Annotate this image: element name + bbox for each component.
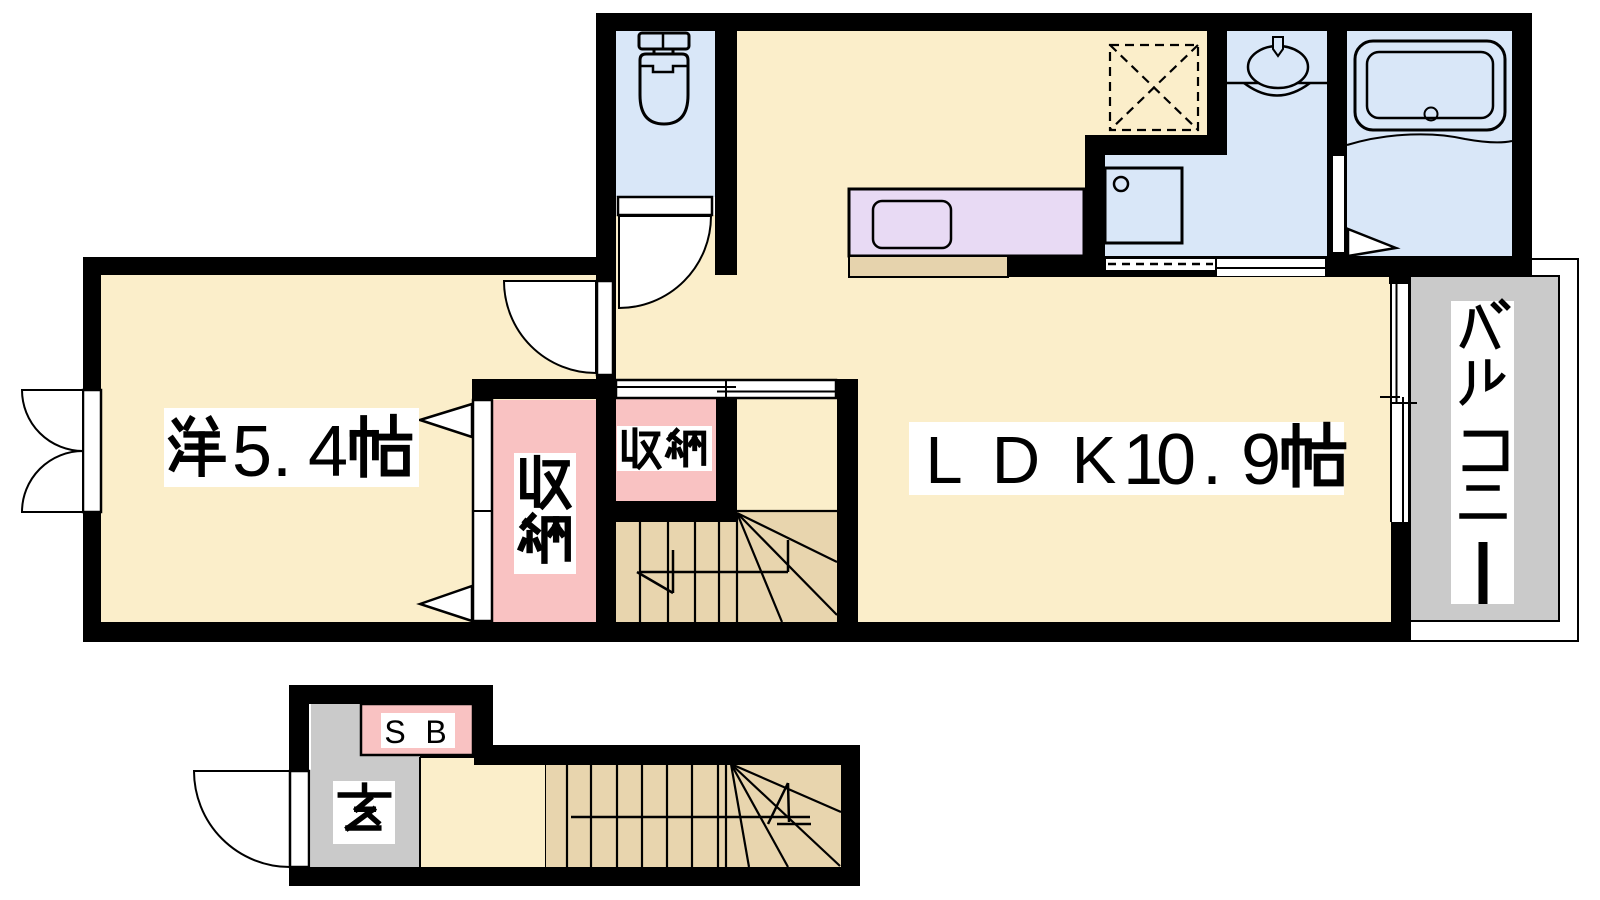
svg-text:B: B [425, 714, 446, 750]
svg-text:9: 9 [1241, 420, 1281, 500]
svg-text:.: . [1202, 420, 1222, 500]
svg-text:5: 5 [232, 412, 272, 492]
svg-text:S: S [384, 714, 405, 750]
svg-text:L: L [925, 423, 962, 498]
svg-text:4: 4 [308, 412, 348, 492]
svg-text:.: . [272, 412, 292, 492]
svg-text:D: D [992, 423, 1040, 498]
svg-text:0: 0 [1156, 420, 1196, 500]
svg-text:K: K [1072, 423, 1117, 498]
